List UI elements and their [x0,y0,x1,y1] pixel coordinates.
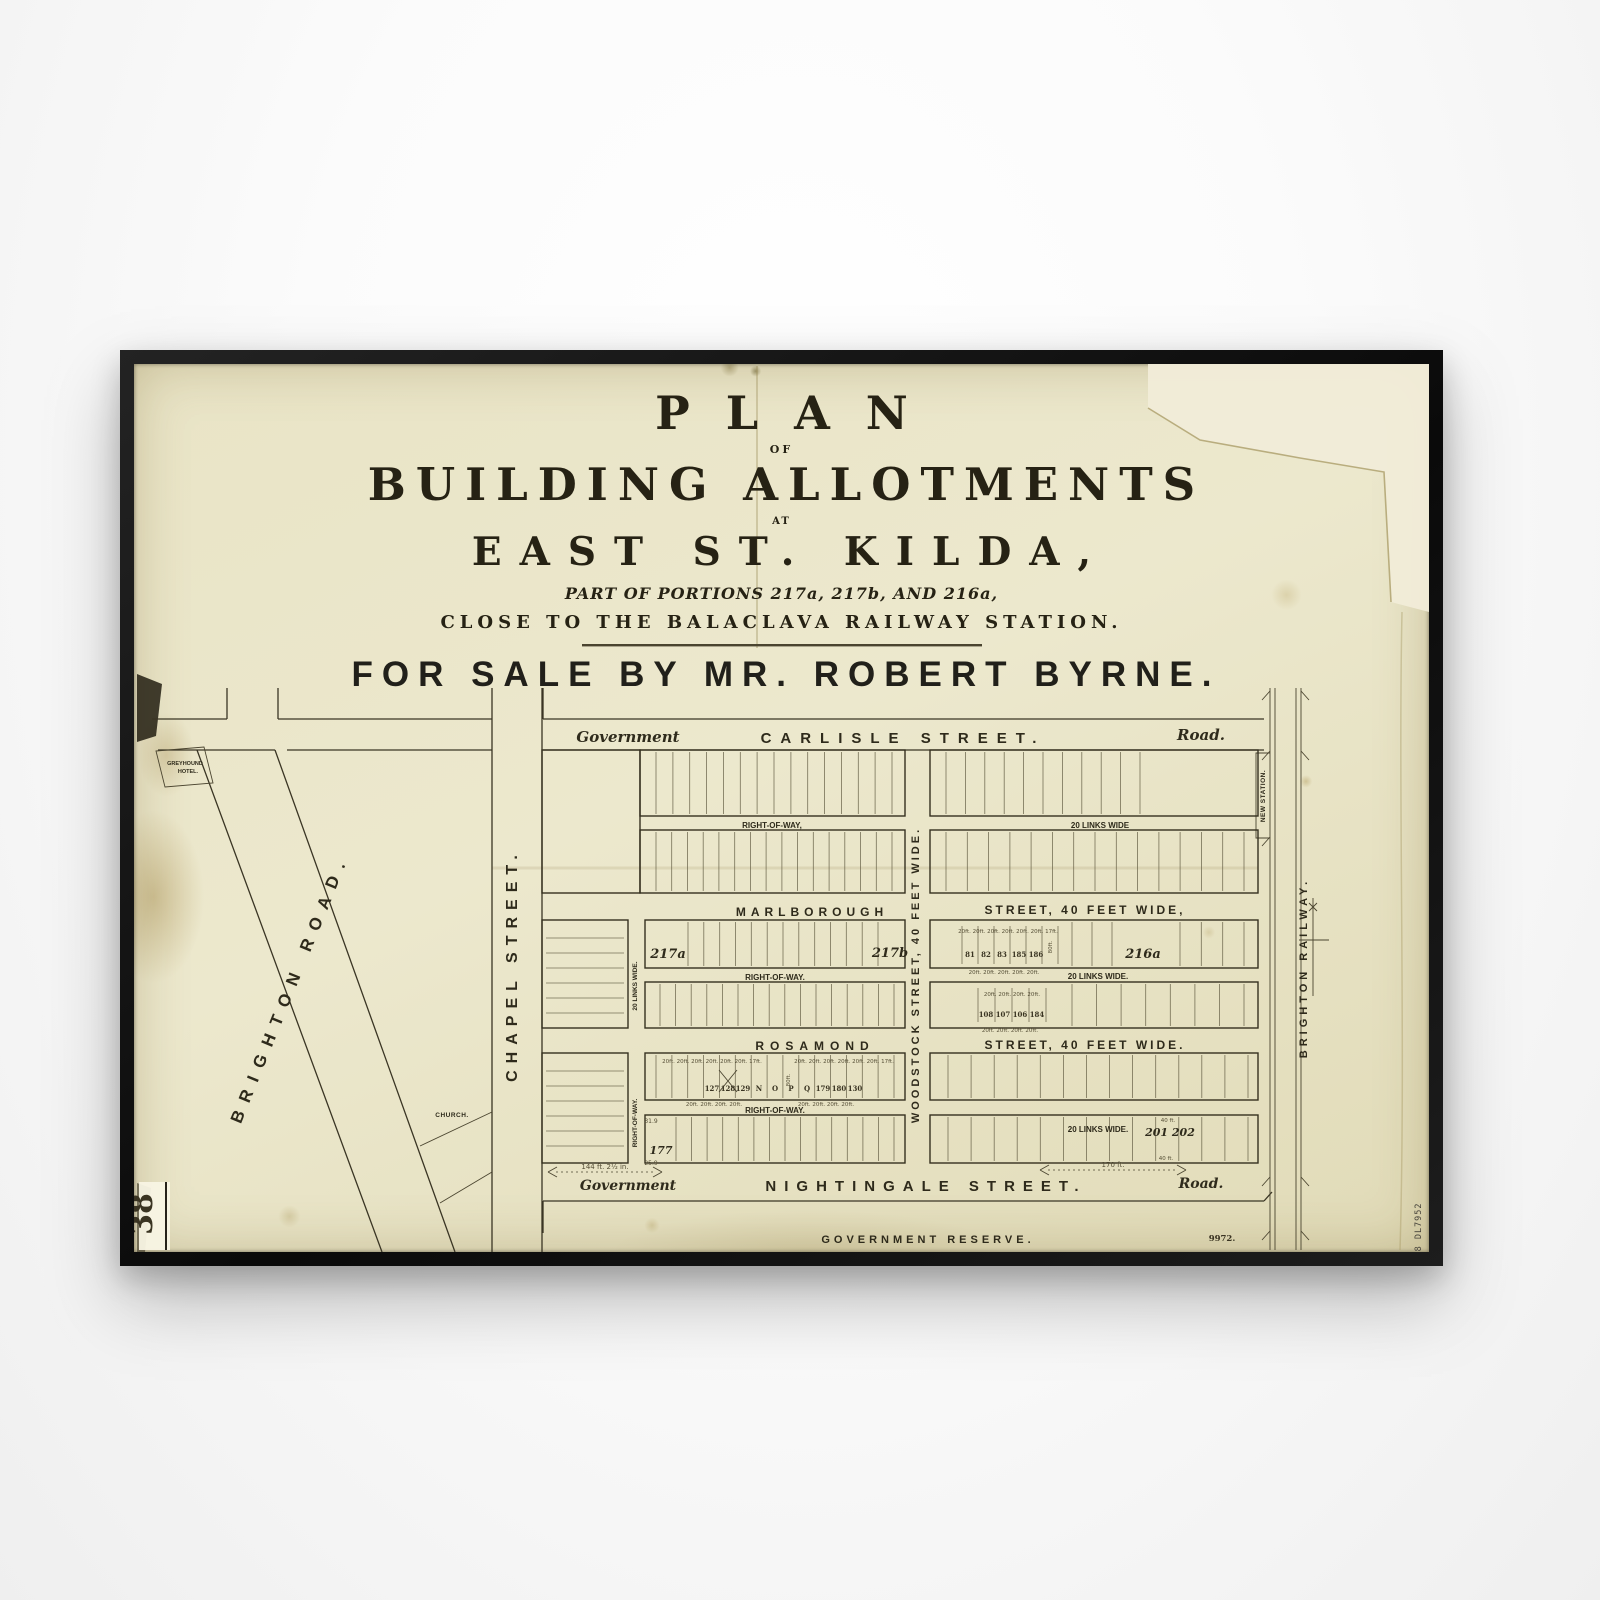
title-block: PLAN OF BUILDING ALLOTMENTS AT EAST ST. … [134,364,1429,695]
title-plan: PLAN [134,386,1429,440]
crease-right [1400,612,1402,1250]
block-north-east-lower [930,830,1258,893]
label-links-wide-2: 20 LINKS WIDE. [1068,972,1128,981]
label-chapel-street: CHAPEL STREET. [504,848,521,1082]
dim-31-9: 31.9 [644,1118,658,1125]
label-portion-216a: 216a [1124,947,1161,962]
lot-number: 83 [997,950,1007,959]
label-right-of-way-vertical: RIGHT-OF-WAY. [632,1099,639,1148]
block-rosamond-west-lower [645,1115,905,1163]
title-location: EAST ST. KILDA, [134,529,1429,575]
dims-row: 20ft. 20ft. 20ft. 20ft. 20ft. 20ft. 17ft… [794,1059,894,1065]
dim-80ft: 80ft. [1048,940,1054,953]
wall-background: PLAN OF BUILDING ALLOTMENTS AT EAST ST. … [0,0,1600,1600]
title-sale-line: FOR SALE BY MR. ROBERT BYRNE. [134,655,1429,695]
church-boundary-lines [420,1112,492,1203]
label-carlisle-street: CARLISLE STREET. [761,730,1046,747]
label-greyhound-hotel-1: GREYHOUND [167,761,203,767]
label-road-bottom: Road. [1178,1176,1224,1192]
title-portions: PART OF PORTIONS 217a, 217b, AND 216a, [134,584,1429,603]
dims-row: 20ft. 20ft. 20ft. 20ft. [798,1102,854,1108]
block-rosamond-east-upper [930,1053,1258,1100]
block-north-corner-lot [542,750,640,893]
greyhound-hotel-outline [156,747,213,787]
label-lot-177: 177 [650,1144,673,1157]
title-of: OF [134,443,1429,456]
dims-row: 20ft. 20ft. 20ft. 20ft. 20ft. 20ft. 17ft… [662,1059,762,1065]
title-rule-divider [582,644,982,646]
label-lot-201-202: 201 202 [1144,1126,1195,1139]
lot-number: 128 [721,1084,736,1093]
label-church: CHURCH. [435,1112,468,1119]
lot-number: 108 [979,1010,994,1019]
lot-number: 186 [1029,950,1044,959]
dim-40ft: 40 ft. [1161,1118,1176,1124]
dims-row: 20ft. 20ft. 20ft. 20ft. [686,1102,742,1108]
label-government-top: Government [576,728,679,746]
label-government-bottom: Government [580,1178,677,1194]
label-portion-217b: 217b [871,946,908,961]
lot-letter: Q [804,1084,810,1093]
lot-number: 81 [965,950,975,959]
title-building-allotments: BUILDING ALLOTMENTS [134,458,1429,511]
block-mid-west-lower [645,982,905,1028]
label-brighton-railway: BRIGHTON RAILWAY. [1298,878,1310,1058]
label-right-of-way-2: RIGHT-OF-WAY. [745,973,805,982]
lot-number: 180 [832,1084,847,1093]
lot-number: 185 [1012,950,1027,959]
block-rosamond-east-lower [930,1115,1258,1163]
lot-letter: O [772,1084,778,1093]
sheet-number: 38 [134,1193,160,1235]
carlisle-street-lines [152,688,1264,750]
map-labels: CARLISLE STREET. Government Road. MARLBO… [134,726,1424,1252]
lot-number: 107 [996,1010,1011,1019]
label-rosamond-suffix: STREET, 40 FEET WIDE. [984,1038,1185,1052]
dim-80ft: 80ft. [786,1073,792,1086]
label-marlborough: MARLBOROUGH [736,905,888,919]
label-nightingale-street: NIGHTINGALE STREET. [765,1178,1086,1195]
map-paper: PLAN OF BUILDING ALLOTMENTS AT EAST ST. … [134,364,1429,1252]
label-right-of-way-1: RIGHT-OF-WAY, [742,821,802,830]
block-north-east-upper [930,750,1258,816]
dim-left-total: 144 ft. 2½ in. [581,1163,628,1171]
dim-25-9: 25.9 [644,1160,658,1167]
block-north-west-upper [640,750,905,816]
label-portion-217a: 217a [649,947,686,962]
dims-row: 20ft. 20ft. 20ft. 20ft. [982,1028,1038,1034]
label-plan-number: 9972. [1209,1234,1236,1244]
lot-number: 127 [705,1084,720,1093]
label-links-wide-vertical: 20 LINKS WIDE. [632,961,639,1010]
dims-row: 20ft. 20ft. 20ft. 20ft. 20ft. 20ft. 17ft… [958,929,1058,935]
dims-row: 20ft. 20ft. 20ft. 20ft. [984,992,1040,998]
block-chapel-frontage-mid [542,920,628,1028]
label-links-wide-1: 20 LINKS WIDE [1071,821,1130,830]
title-station-note: CLOSE TO THE BALACLAVA RAILWAY STATION. [134,612,1429,633]
title-at: AT [134,516,1429,527]
block-mid-east-lower [930,982,1258,1028]
catalog-stamp: 88 DL7952 [1414,1202,1424,1252]
label-right-of-way-3: RIGHT-OF-WAY. [745,1106,805,1115]
dim-right-total: 170 ft. [1102,1161,1125,1169]
label-links-wide-3: 20 LINKS WIDE. [1068,1125,1128,1134]
label-road-top: Road. [1176,726,1225,744]
block-216a [930,920,1258,968]
lot-number: 130 [848,1084,863,1093]
dims-row: 20ft. 20ft. 20ft. 20ft. 20ft. [969,970,1040,976]
lot-number: 184 [1030,1010,1045,1019]
nightingale-street-lines [543,1192,1272,1233]
label-marlborough-suffix: STREET, 40 FEET WIDE, [984,903,1185,917]
dim-40ft: 40 ft. [1159,1156,1174,1162]
lot-letter: N [756,1084,763,1093]
label-brighton-road: BRIGHTON ROAD. [227,850,353,1126]
lot-number: 106 [1013,1010,1028,1019]
brighton-road-lines [197,750,455,1252]
label-rosamond: ROSAMOND [755,1039,874,1053]
label-new-station: NEW STATION. [1260,770,1267,822]
label-greyhound-hotel-2: HOTEL. [178,769,199,775]
lot-number: 129 [736,1084,751,1093]
block-chapel-frontage-south [542,1053,628,1163]
lot-number: 82 [981,950,991,959]
block-north-west-lower [640,830,905,893]
poster-frame: PLAN OF BUILDING ALLOTMENTS AT EAST ST. … [120,350,1443,1266]
railway-track-lines [1270,688,1301,1250]
lot-number: 179 [816,1084,831,1093]
label-government-reserve: GOVERNMENT RESERVE. [821,1234,1034,1246]
label-woodstock-street: WOODSTOCK STREET, 40 FEET WIDE. [910,827,922,1123]
